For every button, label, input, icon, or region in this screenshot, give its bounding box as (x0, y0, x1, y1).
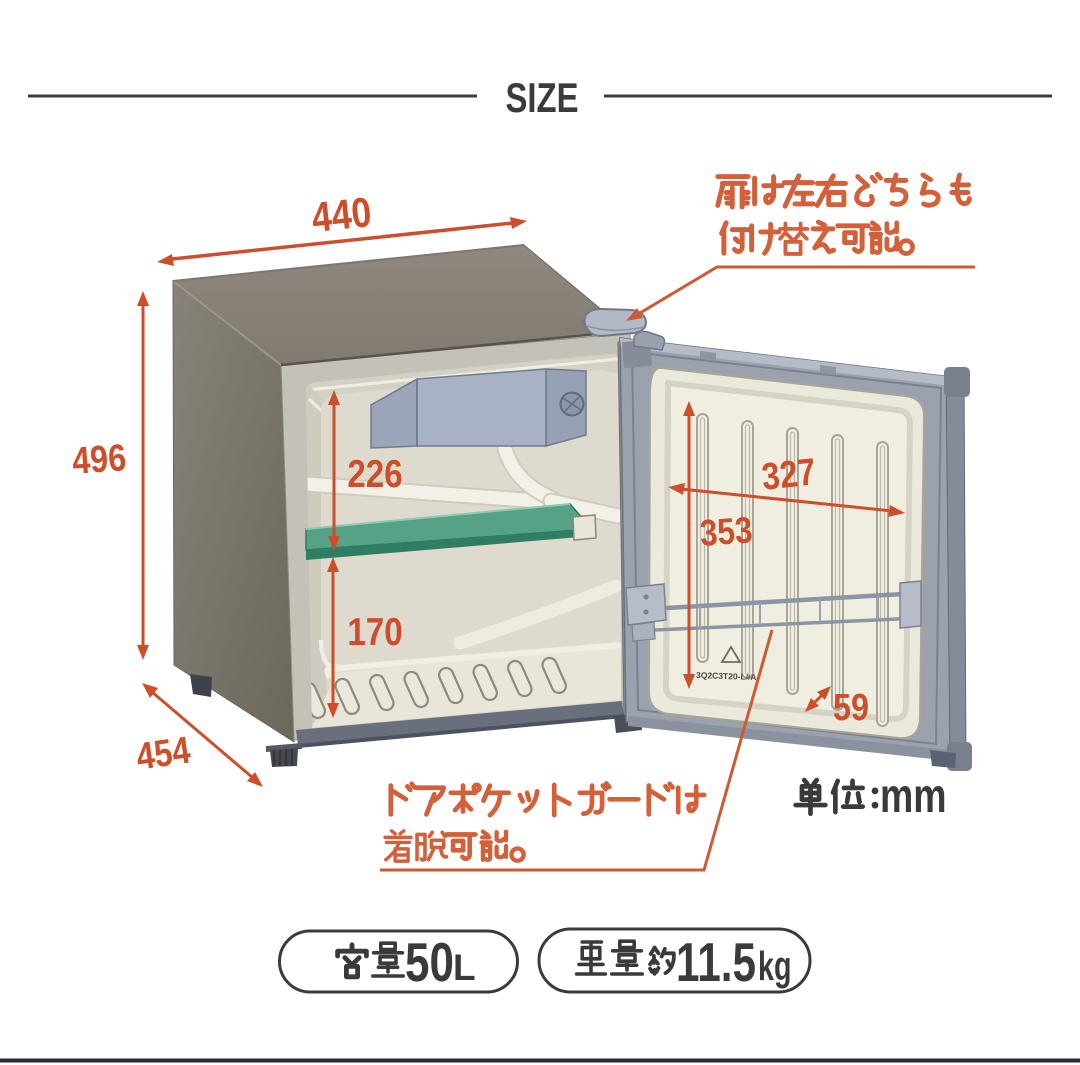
svg-text:353: 353 (699, 510, 754, 555)
svg-text:L: L (453, 947, 476, 988)
svg-text:454: 454 (134, 729, 194, 778)
svg-text:170: 170 (347, 609, 402, 653)
svg-text:11.5: 11.5 (676, 933, 756, 994)
svg-text:50: 50 (405, 931, 454, 993)
svg-text:496: 496 (71, 437, 128, 483)
svg-text:SIZE: SIZE (506, 74, 579, 121)
svg-text:mm: mm (880, 770, 947, 824)
svg-text:59: 59 (833, 687, 869, 729)
svg-text:kg: kg (758, 944, 791, 989)
svg-text:226: 226 (347, 451, 402, 495)
svg-text:440: 440 (310, 189, 374, 241)
svg-text:327: 327 (760, 451, 818, 498)
svg-text:3Q2C3T20-L#A: 3Q2C3T20-L#A (696, 670, 757, 682)
